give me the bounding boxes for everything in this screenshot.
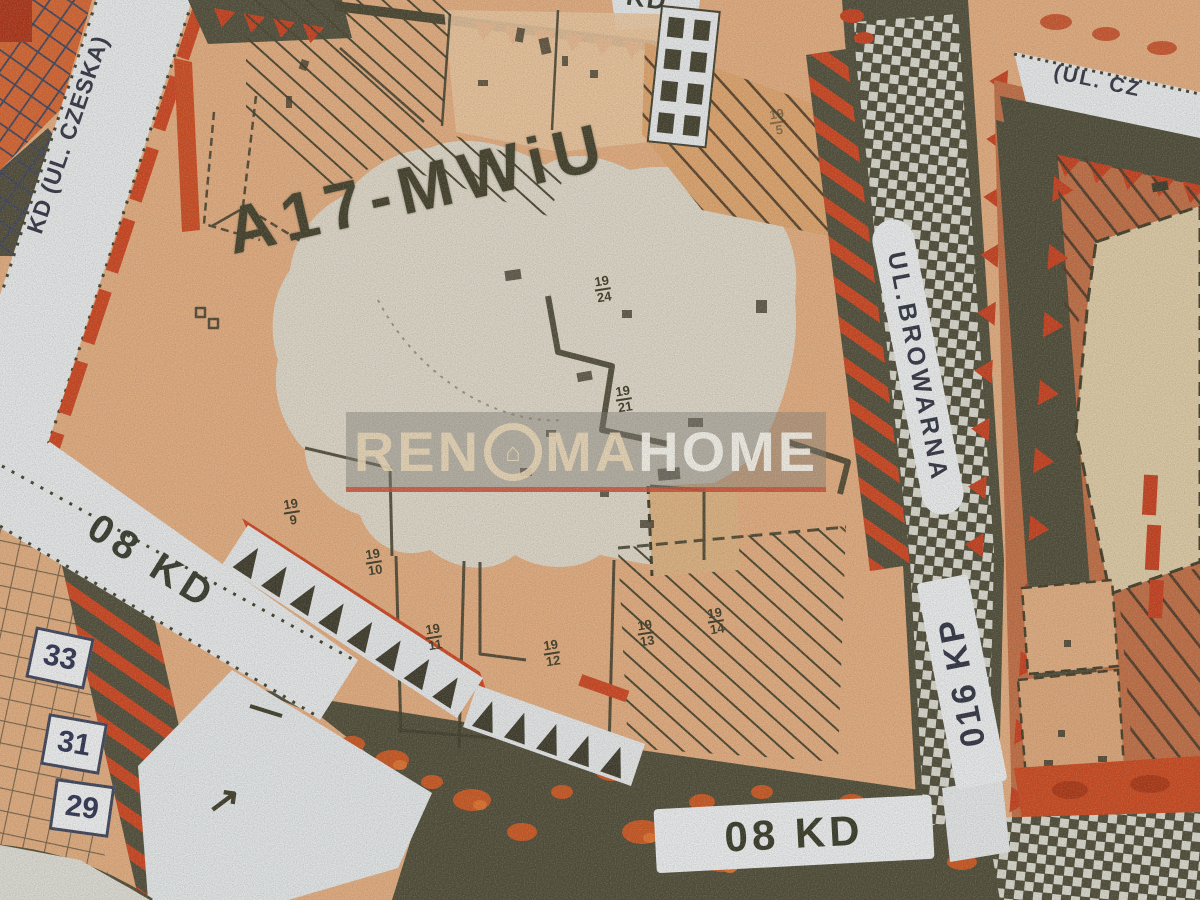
house-icon: ⌂: [484, 423, 542, 481]
house-number-31: 31: [40, 713, 108, 775]
direction-arrow-icon: ↗: [205, 776, 243, 825]
house-glyph: ⌂: [505, 439, 521, 465]
renomahome-watermark: REN⌂MAHOME: [346, 412, 826, 492]
plot-denominator: 5: [770, 122, 788, 138]
house-number-text: 29: [63, 789, 101, 827]
checker-bottom-right: [986, 812, 1200, 900]
plot-denominator: 11: [426, 637, 444, 653]
watermark-part2: MA: [545, 424, 638, 480]
plot-denominator: 12: [544, 653, 562, 669]
house-number-29: 29: [49, 778, 116, 838]
tan-column-building: [648, 482, 740, 576]
house-number-text: 33: [40, 638, 80, 678]
plot-denominator: 9: [284, 512, 302, 528]
zoning-map-photo: KD (UL. CZESKA) A17-MWiU 08 KD 08 KD UL.…: [0, 0, 1200, 900]
house-number-text: 31: [55, 724, 94, 763]
plot-denominator: 13: [638, 633, 656, 649]
watermark-text: REN⌂MAHOME: [354, 423, 818, 481]
right-zone: [986, 14, 1200, 900]
watermark-red-line: [346, 487, 826, 492]
plot-denominator: 10: [366, 562, 384, 578]
white-fragment: [942, 778, 1010, 862]
plot-denominator: 24: [595, 289, 613, 305]
watermark-part1: REN: [354, 424, 481, 480]
watermark-part3: HOME: [638, 424, 818, 480]
plot-denominator: 14: [708, 621, 726, 637]
